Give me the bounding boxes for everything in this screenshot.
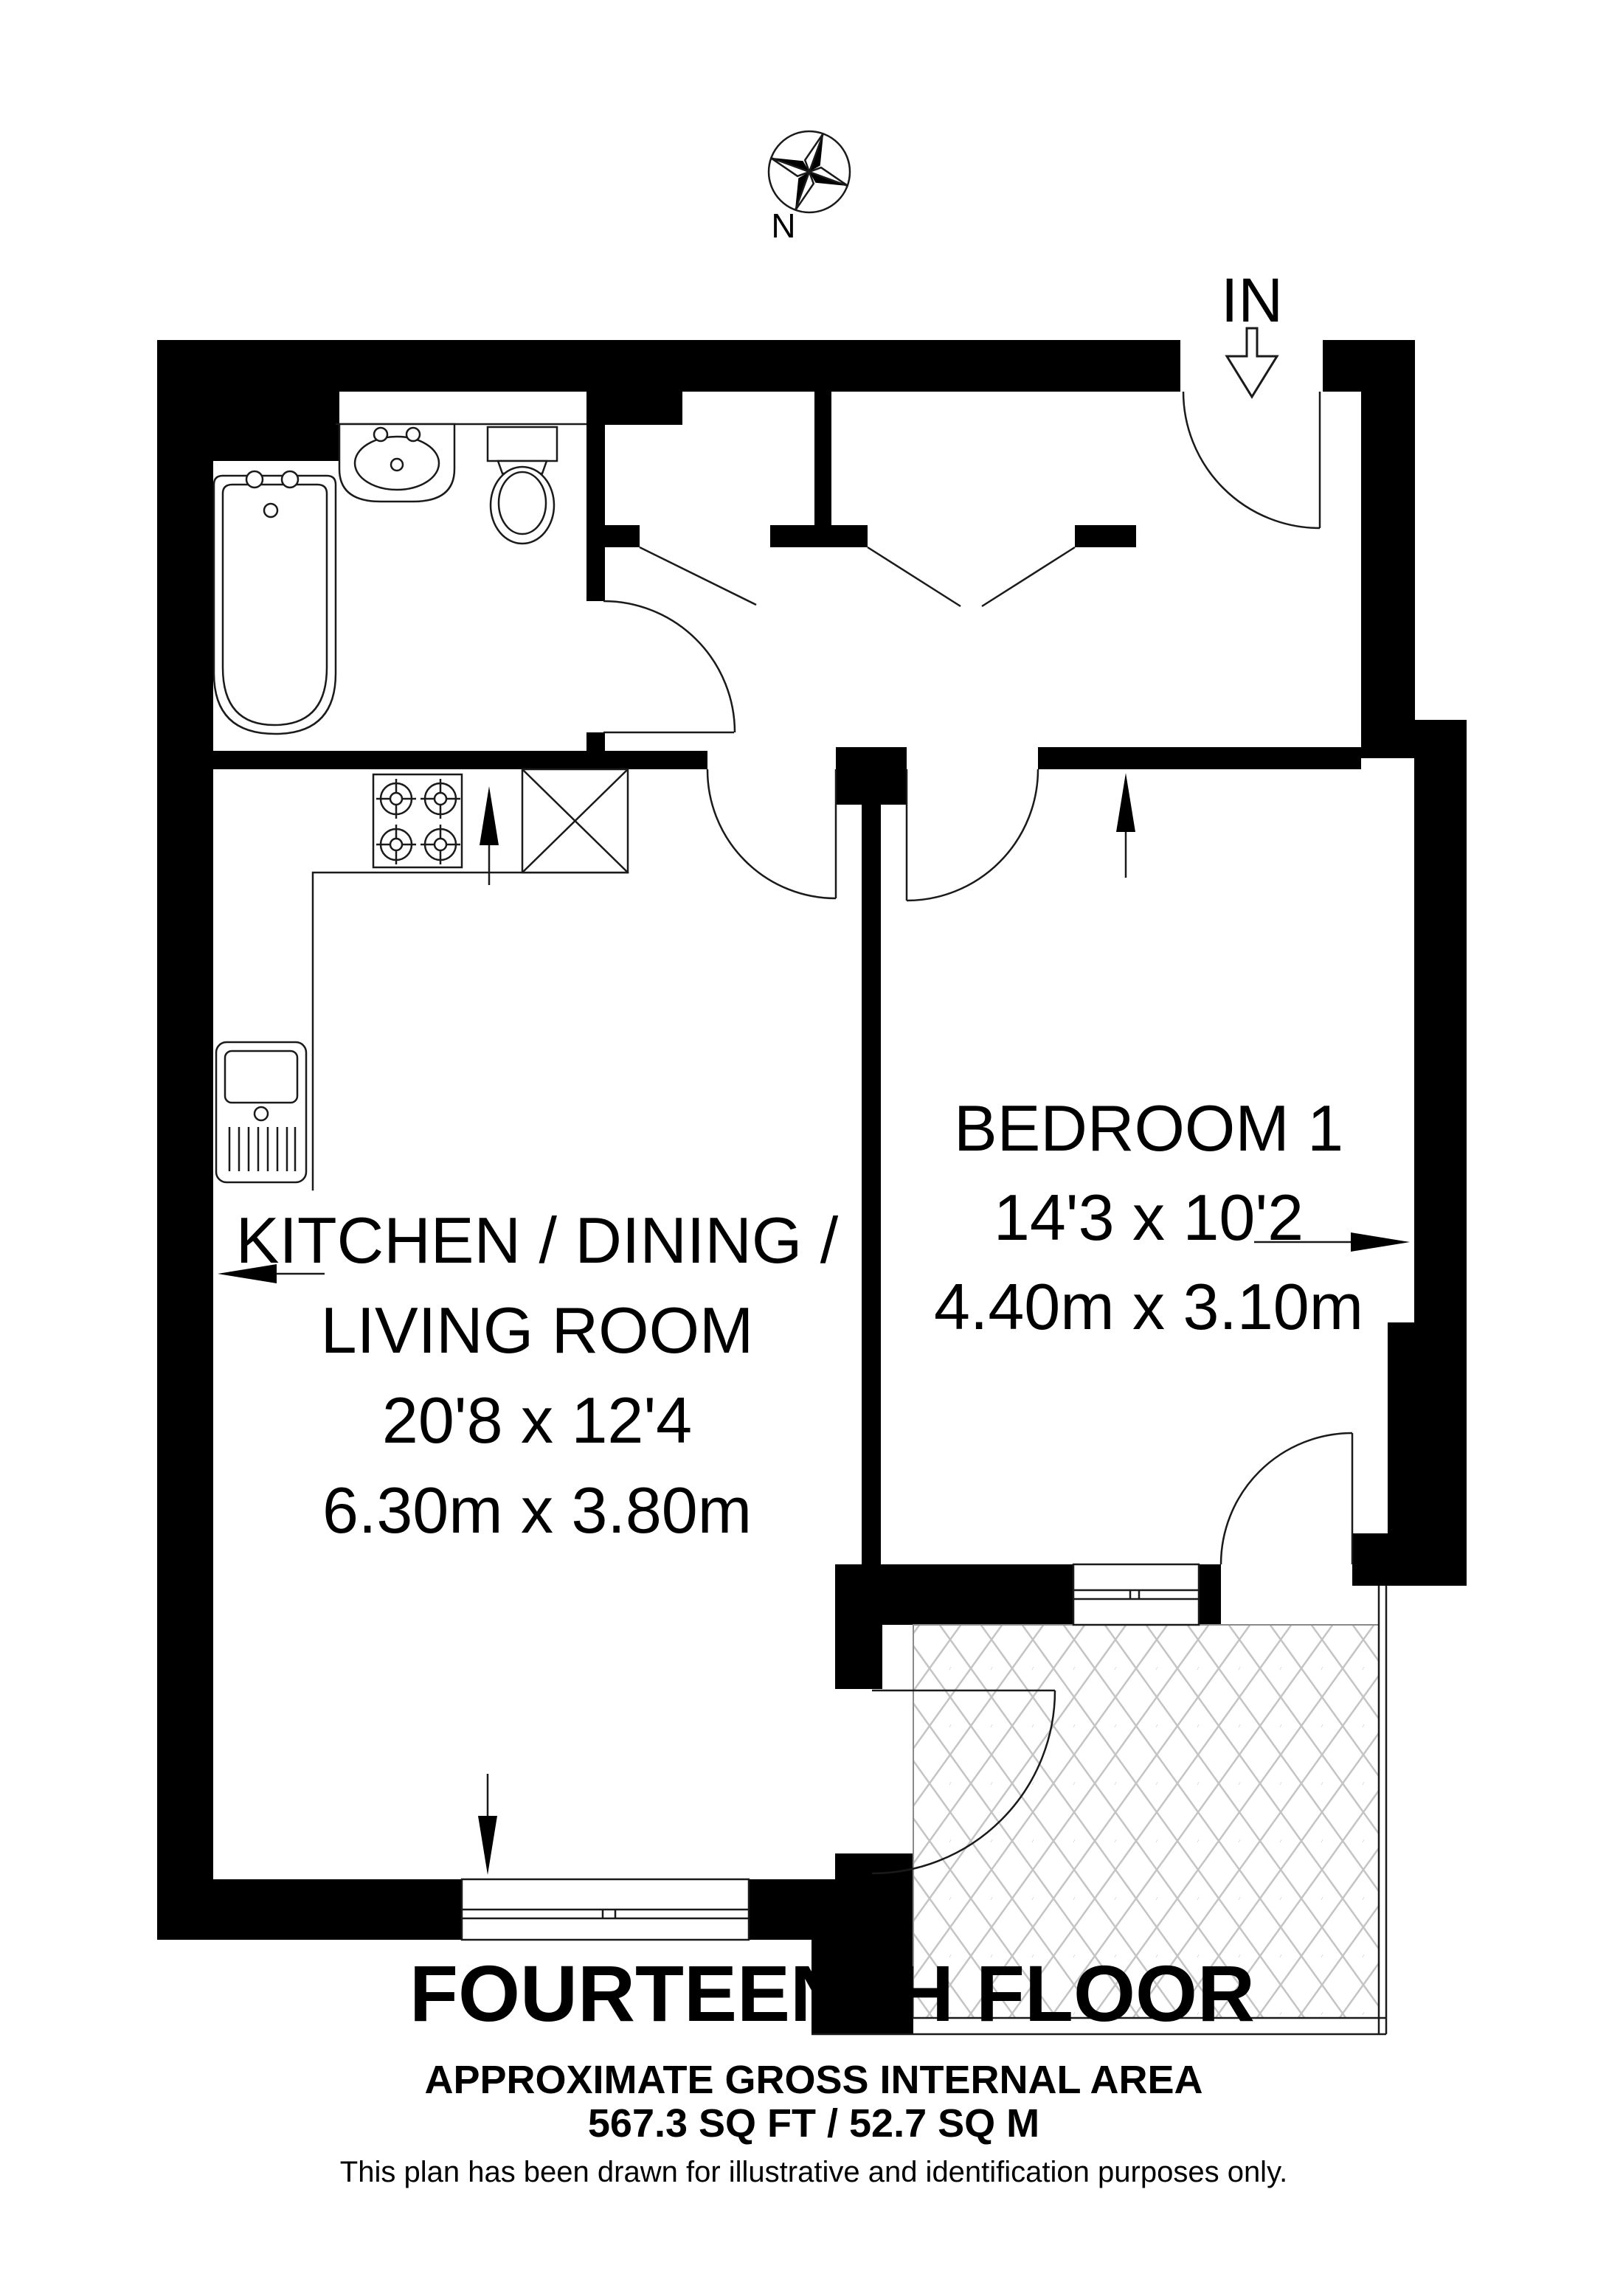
wall-kitchen-north <box>213 751 707 769</box>
closet-door-right-a <box>868 547 961 606</box>
wall-bedroom-north <box>1038 747 1361 769</box>
wall-corner-block <box>1352 1533 1388 1586</box>
footer: FOURTEENTH FLOOR APPROXIMATE GROSS INTER… <box>340 1949 1287 2188</box>
floor-title: FOURTEENTH FLOOR <box>409 1949 1255 2038</box>
wall-junction-block <box>836 747 907 805</box>
wall-top <box>157 340 1180 392</box>
closet-door-right-b <box>982 547 1075 606</box>
wall-right-upper <box>1361 340 1415 758</box>
floorplan-page: N IN KITCHEN / DINING / LIVING ROOM 20'8… <box>0 0 1623 2296</box>
kitchen-sink-drain-icon <box>255 1107 268 1120</box>
bath-tap-icon <box>282 471 298 488</box>
north-label: N <box>771 207 795 245</box>
wall-bedroom-south-mid <box>1199 1564 1221 1625</box>
room-label-kitchen: KITCHEN / DINING / LIVING ROOM 20'8 x 12… <box>236 1204 839 1547</box>
kitchen-appliance-unit <box>522 769 628 873</box>
bathtub <box>214 471 336 734</box>
wall-living-bedroom <box>862 805 881 1564</box>
bath-tap-icon <box>246 471 263 488</box>
kitchen-dims-metric: 6.30m x 3.80m <box>322 1474 752 1547</box>
area-value: 567.3 SQ FT / 52.7 SQ M <box>588 2101 1039 2146</box>
bedroom-dims-metric: 4.40m x 3.10m <box>934 1270 1363 1343</box>
kitchen-hob <box>373 774 462 867</box>
wall-bathroom-east-upper <box>586 392 605 601</box>
sink-drain-icon <box>391 459 403 471</box>
wall-closet-notch <box>605 392 682 425</box>
toilet <box>488 427 557 544</box>
compass-rose: N <box>769 131 850 245</box>
entrance-label: IN <box>1221 266 1283 335</box>
wall-bottom-right <box>749 1879 835 1940</box>
area-heading: APPROXIMATE GROSS INTERNAL AREA <box>424 2058 1202 2102</box>
sink-tap-icon <box>374 428 387 441</box>
wall-stub-left <box>586 525 640 547</box>
toilet-bowl <box>491 467 554 544</box>
bedroom-name: BEDROOM 1 <box>954 1092 1343 1165</box>
kitchen-sink <box>216 1042 306 1182</box>
dimension-arrow-bedroom-up <box>1116 773 1135 878</box>
kitchen-name-line1: KITCHEN / DINING / <box>236 1204 839 1277</box>
living-room-door <box>707 769 836 898</box>
wall-closet-divider <box>814 392 831 525</box>
bathroom-sink <box>339 424 454 502</box>
kitchen-sink-basin <box>225 1051 297 1103</box>
kitchen-name-line2: LIVING ROOM <box>321 1294 754 1367</box>
entrance-door <box>1183 392 1320 528</box>
kitchen-worktop <box>313 873 628 1190</box>
wall-stub-middle <box>770 525 868 547</box>
kitchen-dims-imperial: 20'8 x 12'4 <box>382 1384 692 1457</box>
wall-bottom-left <box>157 1879 462 1940</box>
wall-right-pier <box>1388 1322 1414 1586</box>
bath-drain-icon <box>264 504 277 517</box>
room-label-bedroom: BEDROOM 1 14'3 x 10'2 4.40m x 3.10m <box>934 1092 1363 1343</box>
disclaimer: This plan has been drawn for illustrativ… <box>340 2156 1287 2188</box>
dimension-arrow-window-down <box>478 1774 497 1875</box>
wall-stub-right <box>1075 525 1136 547</box>
bedroom-dims-imperial: 14'3 x 10'2 <box>994 1181 1304 1254</box>
entrance-arrow-icon <box>1227 328 1277 397</box>
toilet-cistern <box>488 427 557 461</box>
wall-right-lower <box>1414 720 1467 1586</box>
wall-balcony-step-upper <box>835 1853 913 1940</box>
closet-door-left <box>640 547 756 605</box>
sink-tap-icon <box>406 428 420 441</box>
closet-doors <box>640 547 1075 606</box>
bathroom-door <box>603 601 735 732</box>
entrance-marker: IN <box>1221 266 1283 397</box>
wall-left <box>157 340 213 1940</box>
bedroom-window <box>1073 1564 1199 1625</box>
floorplan-canvas: N IN KITCHEN / DINING / LIVING ROOM 20'8… <box>0 0 1623 2296</box>
bedroom-door <box>907 769 1038 901</box>
wall-over-bath <box>213 392 339 461</box>
wall-bedroom-south-left <box>835 1564 1073 1625</box>
wall-bathroom-east-lower <box>586 732 605 751</box>
dimension-arrow-kitchen-up <box>480 786 499 885</box>
living-room-window <box>462 1879 749 1940</box>
bedroom-balcony-door <box>1221 1433 1352 1564</box>
